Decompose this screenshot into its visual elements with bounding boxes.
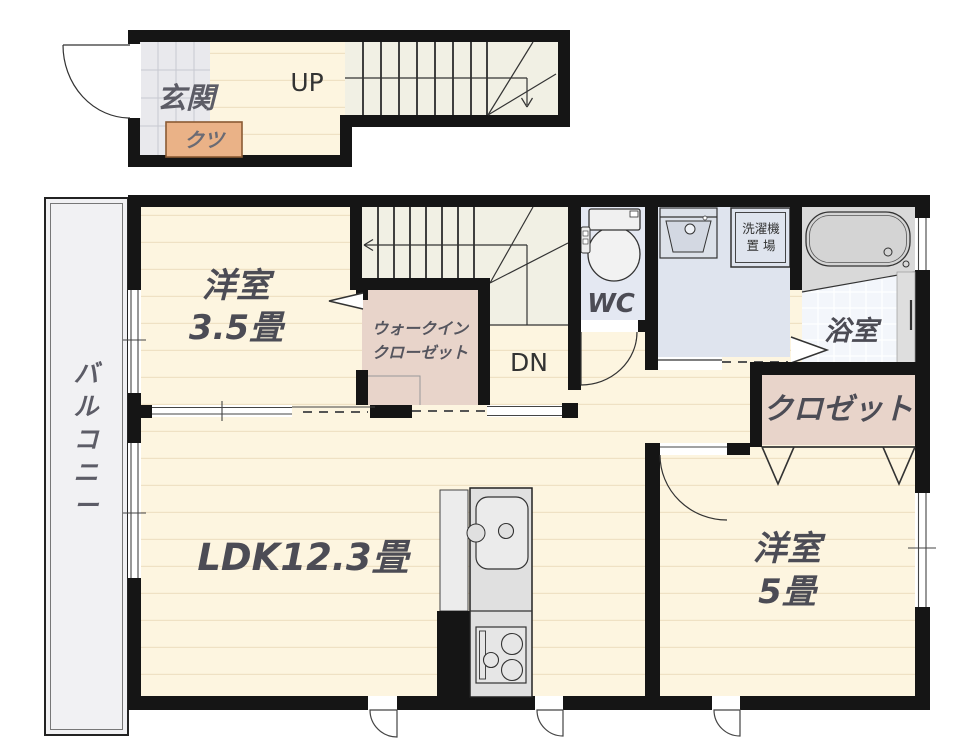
laundry-label-1: 洗濯機 xyxy=(742,221,780,236)
room1-label: 洋室 xyxy=(202,266,275,306)
closet-label: クロゼット xyxy=(763,392,913,427)
wic-label-1: ウォークイン xyxy=(372,319,470,338)
entrance-door xyxy=(63,44,141,118)
bath-counter xyxy=(897,272,915,363)
kitchen xyxy=(437,488,532,697)
upper-floor-section: 玄関 クツ UP xyxy=(63,30,570,167)
ldk-exterior-door-1 xyxy=(368,696,397,737)
laundry-label-2: 置 場 xyxy=(747,238,776,253)
main-floor-section: ウォークイン クローゼット WC xyxy=(123,195,936,737)
svg-text:ニ: ニ xyxy=(73,458,98,487)
kitchen-sink-icon xyxy=(467,497,528,569)
walk-in-closet: ウォークイン クローゼット xyxy=(362,290,478,405)
room2-label: 洋室 xyxy=(753,529,826,569)
stove-icon xyxy=(476,627,526,683)
washroom-opening xyxy=(658,357,722,370)
room2-size-label: 5畳 xyxy=(758,572,819,612)
stairs-up-label: UP xyxy=(290,68,323,97)
stairs-up xyxy=(345,42,558,115)
shoes-label: クツ xyxy=(184,128,227,152)
svg-text:ー: ー xyxy=(73,491,99,520)
floorplan-page: 玄関 クツ UP バ ル コ ニ ー xyxy=(0,0,960,749)
entrance-label: 玄関 xyxy=(157,81,219,115)
svg-text:コ: コ xyxy=(73,425,100,454)
bathtub-icon xyxy=(806,212,910,267)
balcony-label: バ ル コ ニ ー xyxy=(73,359,102,520)
stairs-down-label: DN xyxy=(510,348,548,377)
bath-label: 浴室 xyxy=(824,316,882,347)
wc-label: WC xyxy=(587,289,635,319)
bathroom: 浴室 xyxy=(791,207,915,363)
room1-size-label: 3.5畳 xyxy=(189,308,286,348)
vanity-sink-icon xyxy=(660,208,717,258)
washroom: 洗濯機 置 場 xyxy=(645,207,790,370)
svg-text:バ: バ xyxy=(73,359,102,388)
wic-label-2: クローゼット xyxy=(372,343,468,362)
kitchen-counter xyxy=(440,490,468,611)
kitchen-partition-wall xyxy=(437,611,470,696)
room2-exterior-door xyxy=(712,696,740,736)
bath-window xyxy=(915,218,930,270)
floorplan-canvas: 玄関 クツ UP バ ル コ ニ ー xyxy=(0,0,960,749)
ldk-label: LDK12.3畳 xyxy=(197,536,411,579)
balcony: バ ル コ ニ ー xyxy=(45,198,128,735)
wc-room: WC xyxy=(581,207,645,320)
svg-text:ル: ル xyxy=(73,392,100,421)
ldk-exterior-door-2 xyxy=(535,696,563,736)
